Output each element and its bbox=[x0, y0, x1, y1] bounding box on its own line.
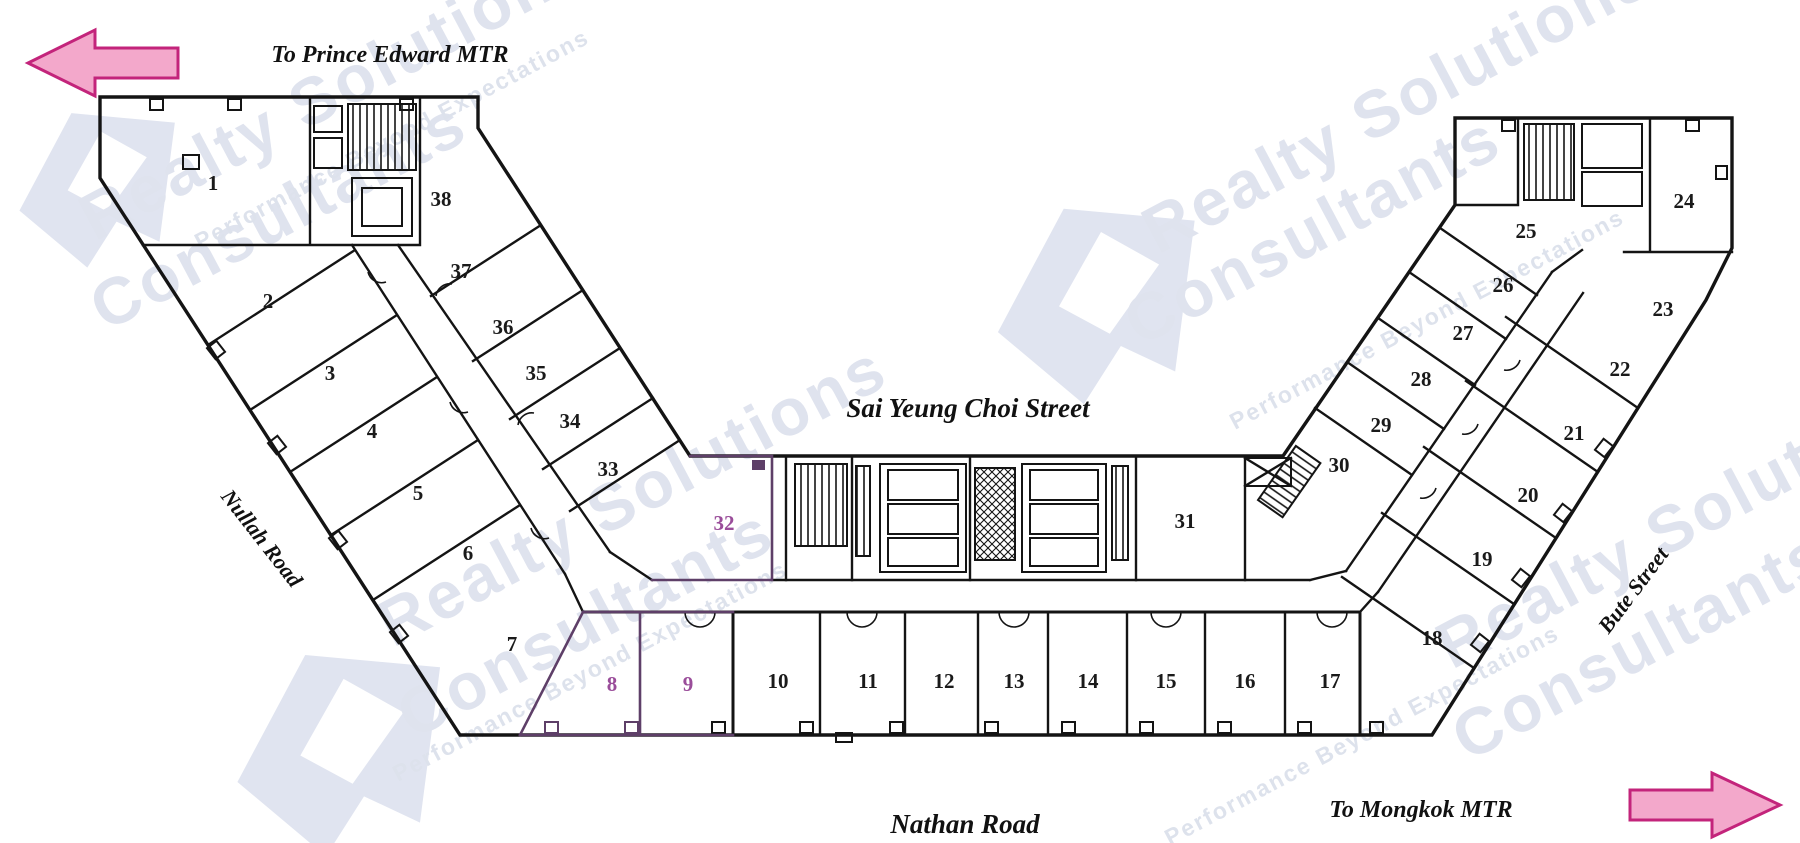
unit-label-30: 30 bbox=[1329, 453, 1350, 477]
unit-label-15: 15 bbox=[1156, 669, 1177, 693]
unit-label-18: 18 bbox=[1422, 626, 1443, 650]
unit-label-35: 35 bbox=[526, 361, 547, 385]
bottom-row-walls bbox=[583, 612, 1383, 742]
unit-label-2: 2 bbox=[263, 289, 274, 313]
unit-label-13: 13 bbox=[1004, 669, 1025, 693]
direction-label-to-mongkok-mtr: To Mongkok MTR bbox=[1329, 797, 1512, 823]
unit-label-16: 16 bbox=[1235, 669, 1256, 693]
unit-label-20: 20 bbox=[1518, 483, 1539, 507]
arrow-right-icon bbox=[1630, 773, 1780, 837]
unit-label-14: 14 bbox=[1078, 669, 1100, 693]
unit-label-23: 23 bbox=[1653, 297, 1674, 321]
street-label-nathan-road: Nathan Road bbox=[889, 809, 1040, 839]
unit-label-5: 5 bbox=[413, 481, 424, 505]
floor-plan-canvas: Realty SolutionsConsultantsPerformance B… bbox=[0, 0, 1800, 843]
unit-label-38: 38 bbox=[431, 187, 452, 211]
unit-label-17: 17 bbox=[1320, 669, 1341, 693]
unit-label-28: 28 bbox=[1411, 367, 1432, 391]
unit-label-34: 34 bbox=[560, 409, 582, 433]
unit-label-7: 7 bbox=[507, 632, 518, 656]
street-label-nullah-road: Nullah Road bbox=[216, 484, 309, 593]
unit-label-1: 1 bbox=[208, 171, 219, 195]
unit-label-37: 37 bbox=[451, 259, 472, 283]
unit-label-10: 10 bbox=[768, 669, 789, 693]
unit-label-12: 12 bbox=[934, 669, 955, 693]
unit-label-32: 32 bbox=[714, 511, 735, 535]
watermark-4: Realty SolutionsConsultantsPerformance B… bbox=[1160, 352, 1800, 843]
unit-label-4: 4 bbox=[367, 419, 378, 443]
unit-label-8: 8 bbox=[607, 672, 618, 696]
unit-label-24: 24 bbox=[1674, 189, 1696, 213]
unit-label-22: 22 bbox=[1610, 357, 1631, 381]
unit-label-26: 26 bbox=[1493, 273, 1514, 297]
unit-label-36: 36 bbox=[493, 315, 514, 339]
unit-label-19: 19 bbox=[1472, 547, 1493, 571]
unit-label-9: 9 bbox=[683, 672, 694, 696]
unit-label-21: 21 bbox=[1564, 421, 1585, 445]
unit-label-3: 3 bbox=[325, 361, 336, 385]
floor-plan-svg: Realty SolutionsConsultantsPerformance B… bbox=[0, 0, 1800, 843]
watermark-3: Realty SolutionsConsultantsPerformance B… bbox=[200, 330, 899, 843]
unit-label-25: 25 bbox=[1516, 219, 1537, 243]
direction-label-to-prince-edward-mtr: To Prince Edward MTR bbox=[271, 42, 508, 68]
unit-label-29: 29 bbox=[1371, 413, 1392, 437]
watermark-2: Realty SolutionsConsultantsPerformance B… bbox=[961, 0, 1663, 436]
unit-label-11: 11 bbox=[858, 669, 878, 693]
unit-label-6: 6 bbox=[463, 541, 474, 565]
arrow-left-icon bbox=[28, 30, 178, 96]
unit-label-31: 31 bbox=[1175, 509, 1196, 533]
unit-label-33: 33 bbox=[598, 457, 619, 481]
central-core bbox=[772, 446, 1346, 580]
street-label-sai-yeung-choi-street: Sai Yeung Choi Street bbox=[846, 393, 1091, 423]
unit-label-27: 27 bbox=[1453, 321, 1474, 345]
